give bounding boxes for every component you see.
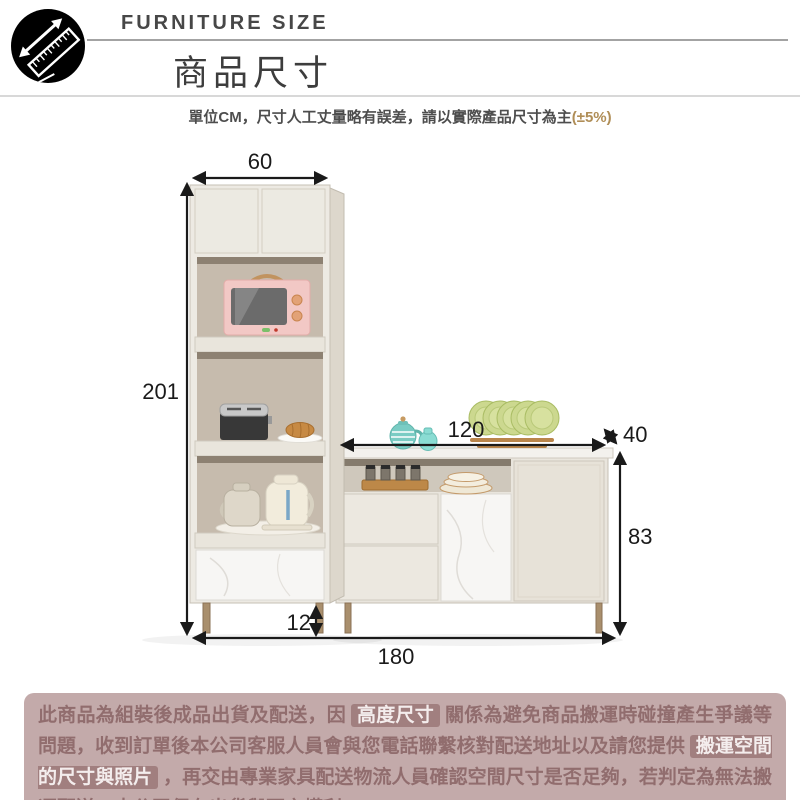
unit-note-tolerance: (±5%) bbox=[572, 109, 612, 126]
sideboard-leg bbox=[345, 603, 351, 633]
dimension-sideboard-height: 83 bbox=[620, 453, 652, 634]
unit-note-text: 單位CM，尺寸人工丈量略有誤差，請以實際產品尺寸為主 bbox=[188, 109, 571, 126]
sideboard-marble-door bbox=[441, 494, 511, 601]
eyebrow-label: FURNITURE SIZE bbox=[121, 12, 329, 35]
dimension-sideboard-top-width: 120 bbox=[342, 417, 604, 445]
sideboard-drawer bbox=[339, 546, 438, 600]
toaster bbox=[220, 404, 272, 440]
pink-toaster-oven bbox=[224, 276, 310, 335]
teal-vase bbox=[419, 428, 437, 451]
ruler-arrow-icon bbox=[10, 8, 86, 84]
sideboard-leg bbox=[596, 603, 602, 633]
dimension-leg-height: 12 bbox=[287, 607, 316, 635]
cabinet-door bbox=[195, 189, 258, 253]
svg-text:120: 120 bbox=[448, 417, 485, 442]
notice-text: 此商品為組裝後成品出貨及配送，因 bbox=[38, 705, 346, 726]
svg-text:60: 60 bbox=[248, 150, 272, 174]
svg-text:83: 83 bbox=[628, 524, 652, 549]
cabinet-leg bbox=[203, 603, 210, 633]
cabinet-door bbox=[262, 189, 325, 253]
notice-highlight-height: 高度尺寸 bbox=[351, 704, 440, 727]
svg-text:201: 201 bbox=[142, 379, 179, 404]
sideboard-wood-door bbox=[514, 461, 604, 601]
sideboard-top bbox=[332, 448, 613, 458]
dimension-sideboard-depth: 40 bbox=[605, 422, 647, 447]
floor-shadow bbox=[333, 634, 623, 646]
dimension-tall-cabinet-width: 60 bbox=[194, 150, 326, 178]
sideboard-drawer bbox=[339, 494, 438, 544]
svg-text:180: 180 bbox=[378, 644, 415, 669]
unit-note: 單位CM，尺寸人工丈量略有誤差，請以實際產品尺寸為主(±5%) bbox=[0, 106, 800, 127]
cabinet-marble-drawer bbox=[196, 550, 324, 600]
furniture-dimension-diagram: 60 201 120 40 83 12 180 bbox=[0, 150, 800, 680]
svg-text:12: 12 bbox=[287, 610, 311, 635]
dimension-tall-cabinet-height: 201 bbox=[142, 184, 187, 634]
eyebrow-rule bbox=[87, 39, 788, 41]
svg-text:40: 40 bbox=[623, 422, 647, 447]
furniture-size-page: FURNITURE SIZE 商品尺寸 單位CM，尺寸人工丈量略有誤差，請以實際… bbox=[0, 0, 800, 800]
page-title: 商品尺寸 bbox=[173, 45, 333, 96]
shipping-notice: 此商品為組裝後成品出貨及配送，因高度尺寸關係為避免商品搬運時碰撞產生爭議等問題，… bbox=[24, 693, 786, 800]
header-divider bbox=[0, 95, 800, 97]
